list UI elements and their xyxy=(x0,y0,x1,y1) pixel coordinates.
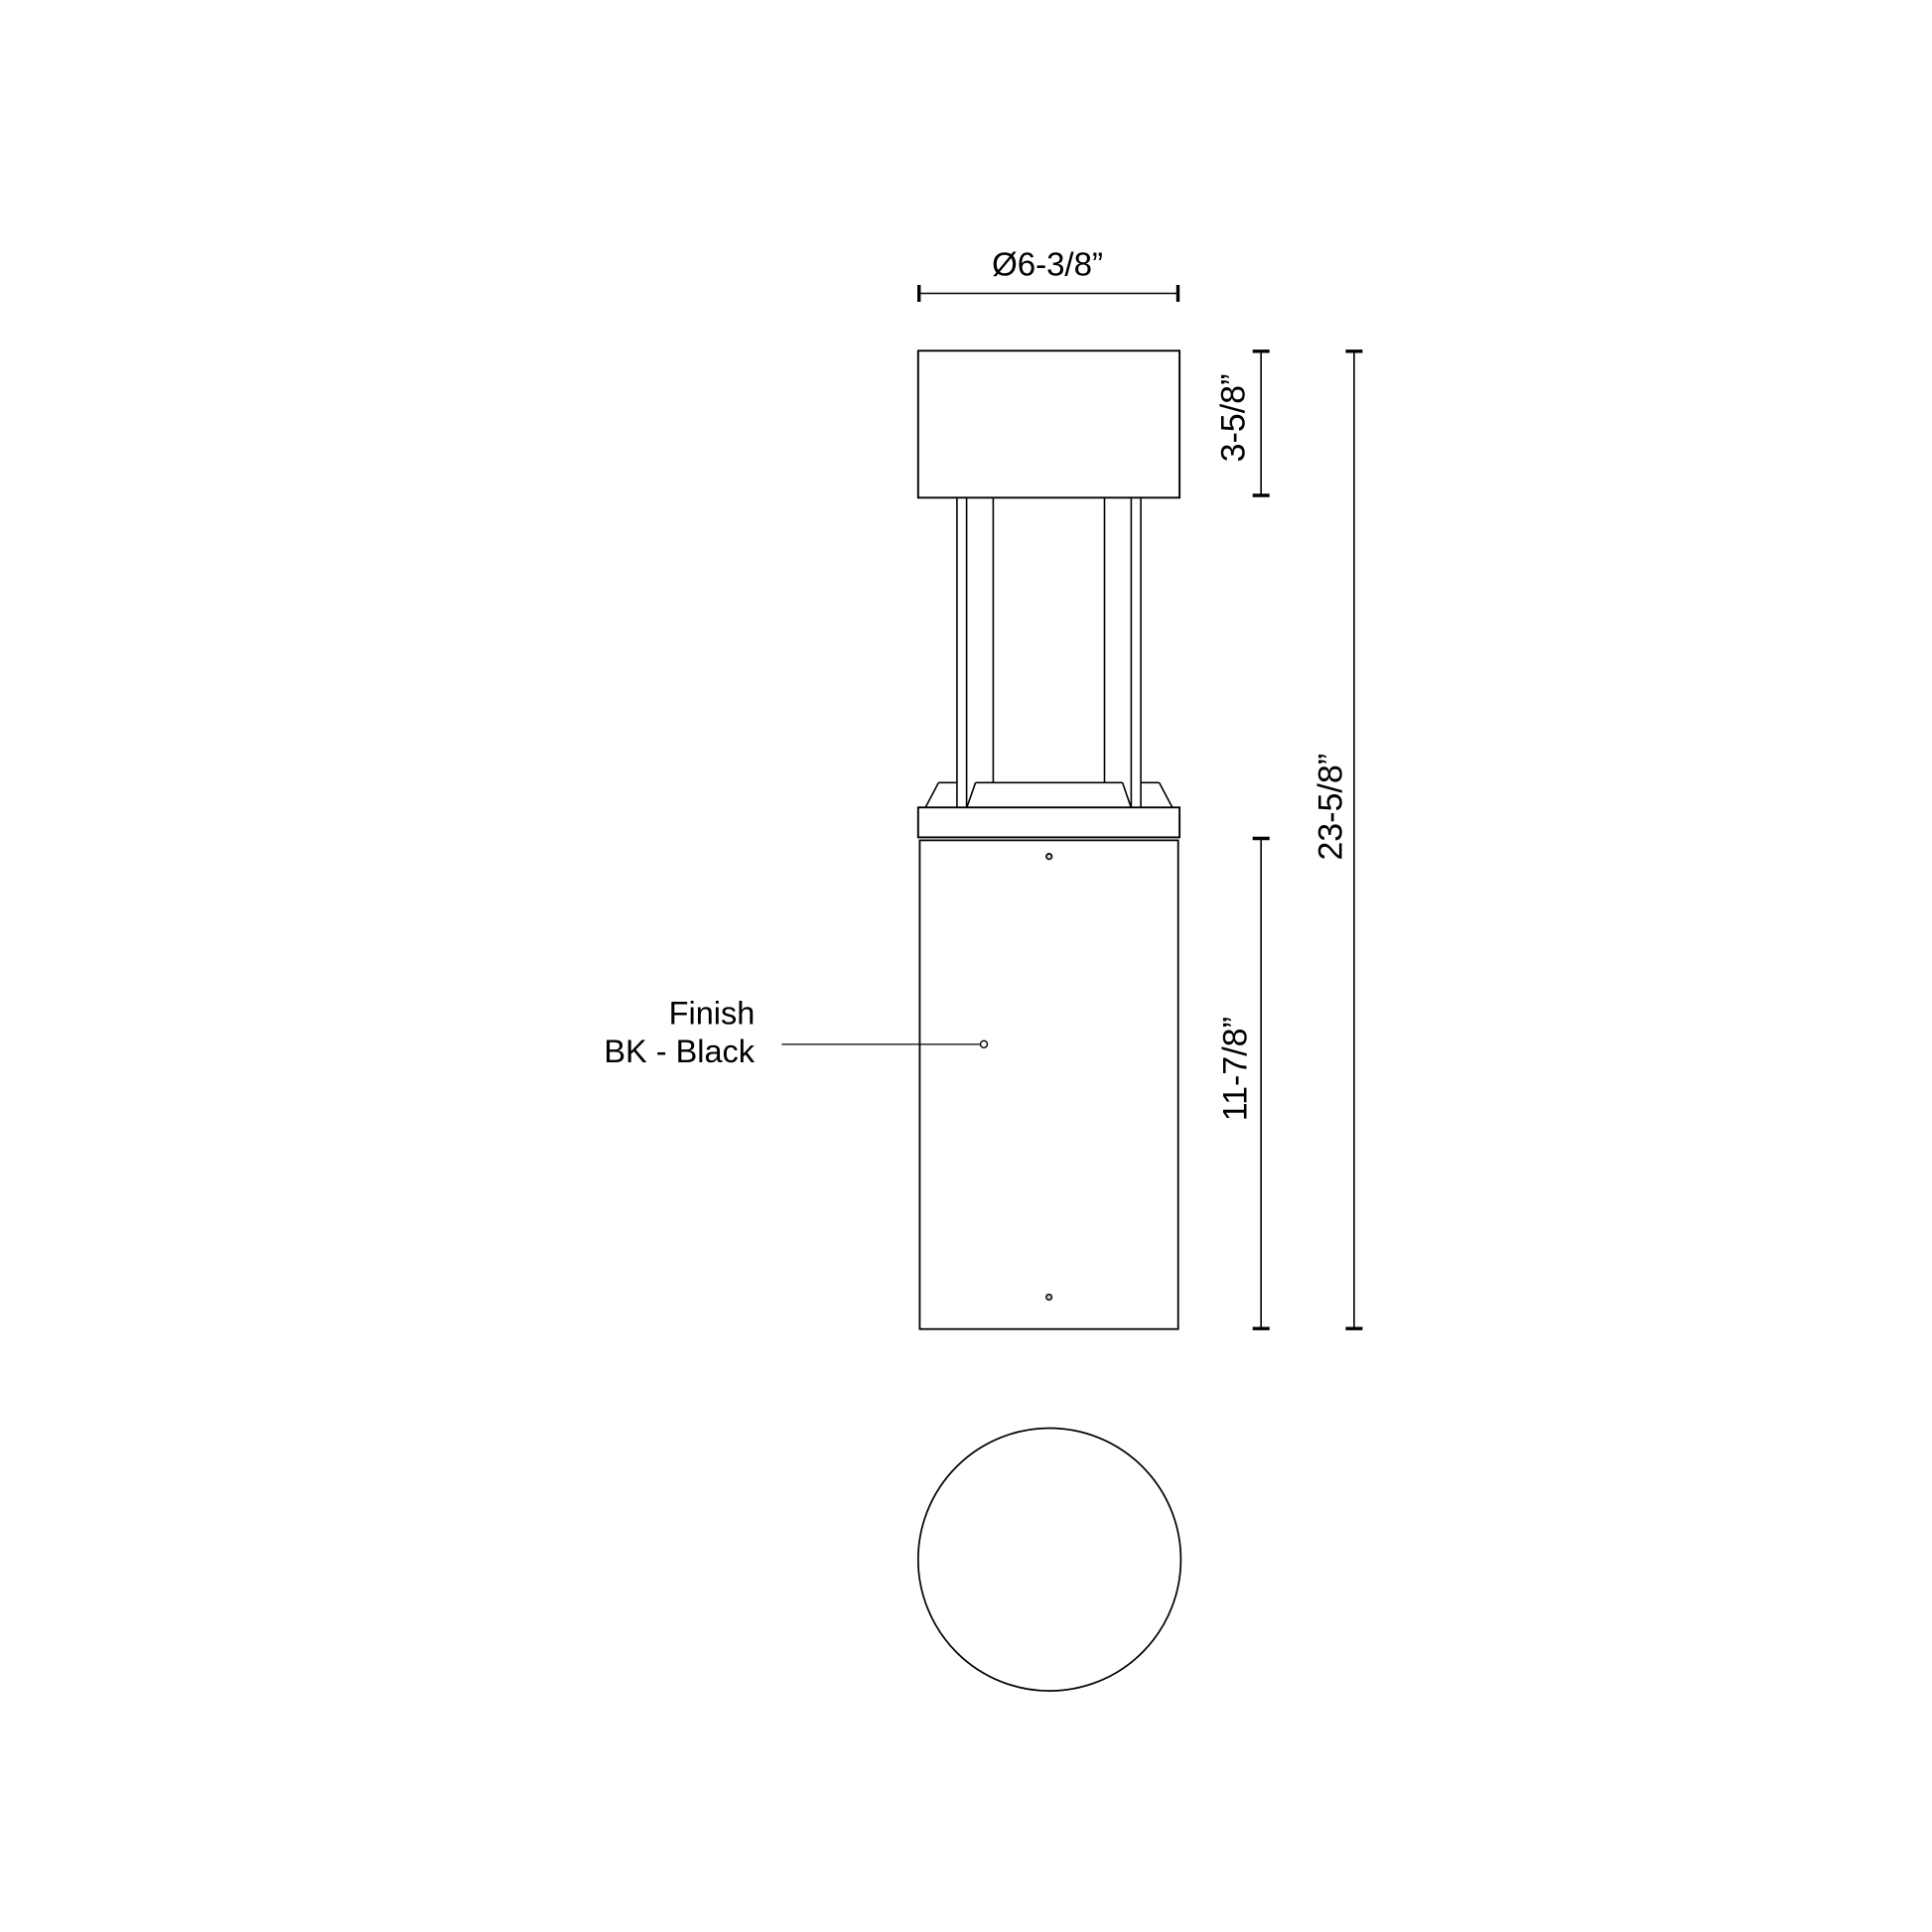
svg-text:11-7/8”: 11-7/8” xyxy=(1217,1017,1255,1121)
svg-text:3-5/8”: 3-5/8” xyxy=(1215,374,1253,463)
svg-text:23-5/8”: 23-5/8” xyxy=(1312,754,1350,861)
svg-text:BK - Black: BK - Black xyxy=(604,1034,755,1069)
svg-text:Finish: Finish xyxy=(669,995,756,1031)
svg-text:Ø6-3/8”: Ø6-3/8” xyxy=(992,246,1103,283)
